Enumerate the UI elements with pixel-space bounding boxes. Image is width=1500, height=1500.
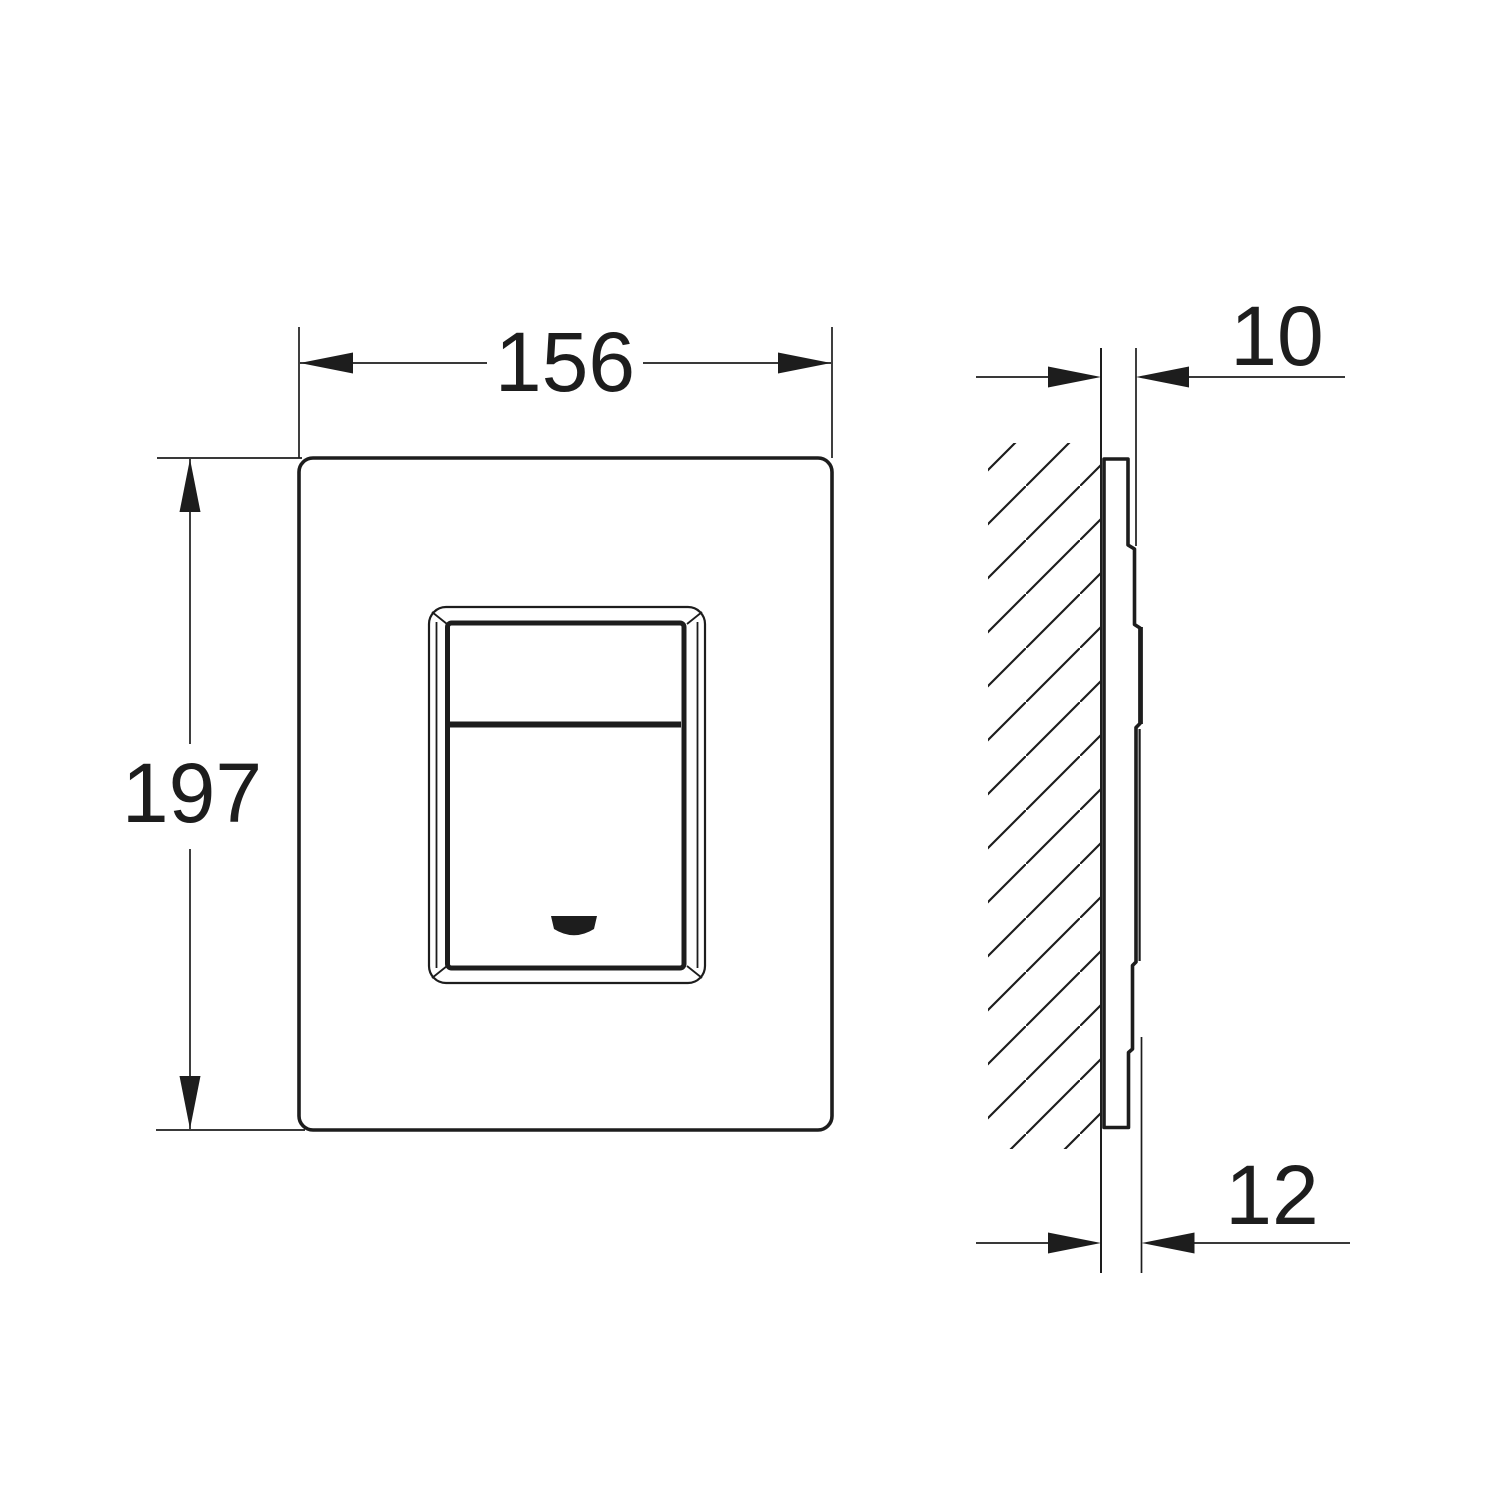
height-arrowhead-top xyxy=(180,459,201,512)
drawing-canvas: 156 197 xyxy=(0,0,1500,1500)
total-depth-arrowhead-right xyxy=(1142,1233,1195,1254)
plate-depth-arrowhead-right xyxy=(1136,367,1189,388)
height-arrowhead-bottom xyxy=(180,1076,201,1129)
width-arrowhead-left xyxy=(300,353,353,374)
side-view xyxy=(988,348,1141,1273)
plate-side-profile xyxy=(1104,459,1140,1128)
technical-drawing: 156 197 xyxy=(0,0,1500,1500)
wall-hatching xyxy=(988,443,1100,1149)
front-view xyxy=(299,458,832,1130)
plate-depth-value: 10 xyxy=(1230,289,1323,383)
total-depth-value: 12 xyxy=(1225,1148,1318,1242)
width-dimension-value: 156 xyxy=(495,315,635,409)
height-dimension-value: 197 xyxy=(122,746,262,840)
plate-depth-arrowhead-left xyxy=(1048,367,1101,388)
total-depth-arrowhead-left xyxy=(1048,1233,1101,1254)
width-arrowhead-right xyxy=(778,353,831,374)
